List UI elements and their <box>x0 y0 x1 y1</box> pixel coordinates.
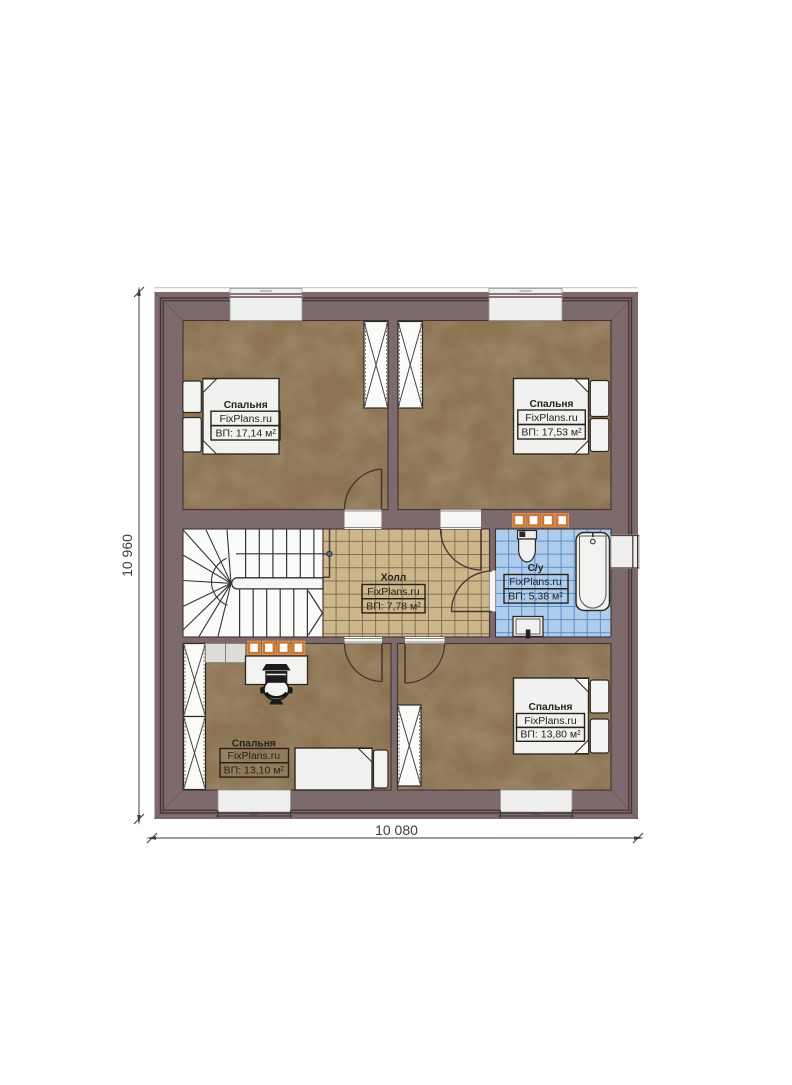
svg-text:Спальня: Спальня <box>224 400 268 411</box>
svg-text:FixPlans.ru: FixPlans.ru <box>509 576 562 588</box>
svg-text:ВП: 17,14 м²: ВП: 17,14 м² <box>216 427 277 439</box>
svg-text:FixPlans.ru: FixPlans.ru <box>367 586 420 598</box>
svg-text:10 080: 10 080 <box>375 822 418 838</box>
svg-text:FixPlans.ru: FixPlans.ru <box>524 715 577 727</box>
svg-text:С/у: С/у <box>528 563 544 574</box>
svg-text:Холл: Холл <box>381 573 407 584</box>
svg-text:ВП: 7,78 м²: ВП: 7,78 м² <box>366 600 421 612</box>
svg-text:ВП: 13,80 м²: ВП: 13,80 м² <box>520 729 581 741</box>
svg-text:FixPlans.ru: FixPlans.ru <box>228 750 281 762</box>
svg-text:ВП: 5,38 м²: ВП: 5,38 м² <box>508 591 563 603</box>
svg-text:Спальня: Спальня <box>529 399 573 410</box>
svg-text:ВП: 17,53 м²: ВП: 17,53 м² <box>521 426 582 438</box>
svg-text:ВП: 13,10 м²: ВП: 13,10 м² <box>224 765 285 777</box>
svg-text:10 960: 10 960 <box>119 534 135 577</box>
svg-text:Спальня: Спальня <box>232 738 276 749</box>
svg-text:FixPlans.ru: FixPlans.ru <box>219 413 272 425</box>
svg-text:FixPlans.ru: FixPlans.ru <box>525 412 578 424</box>
svg-text:Спальня: Спальня <box>528 702 572 713</box>
